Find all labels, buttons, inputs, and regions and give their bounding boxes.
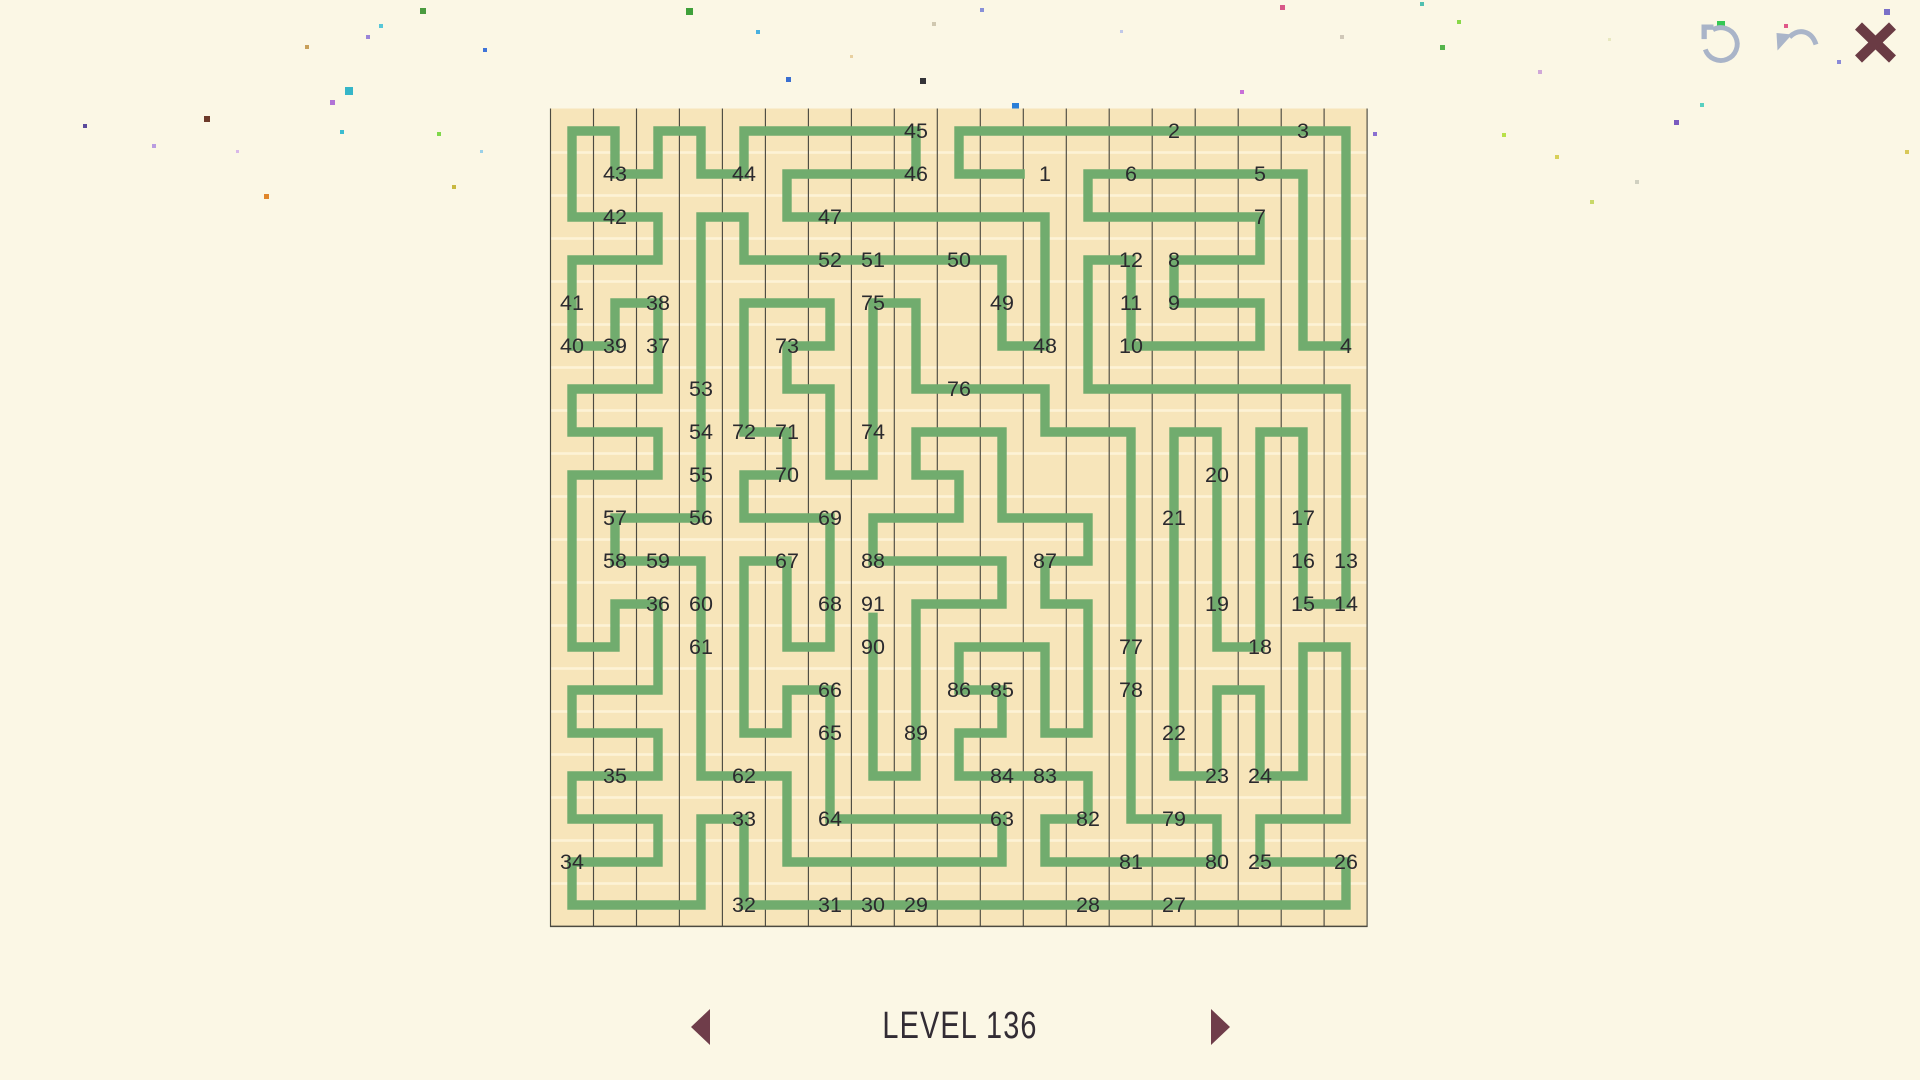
svg-text:38: 38 xyxy=(646,291,670,315)
svg-text:2: 2 xyxy=(1168,119,1180,143)
svg-text:18: 18 xyxy=(1248,635,1272,659)
svg-text:59: 59 xyxy=(646,549,670,573)
svg-text:3: 3 xyxy=(1297,119,1309,143)
svg-text:76: 76 xyxy=(947,377,971,401)
svg-text:28: 28 xyxy=(1076,893,1100,917)
svg-text:79: 79 xyxy=(1162,807,1186,831)
svg-text:39: 39 xyxy=(603,334,627,358)
svg-text:66: 66 xyxy=(818,678,842,702)
svg-text:61: 61 xyxy=(689,635,713,659)
svg-text:89: 89 xyxy=(904,721,928,745)
svg-text:90: 90 xyxy=(861,635,885,659)
svg-text:60: 60 xyxy=(689,592,713,616)
svg-text:22: 22 xyxy=(1162,721,1186,745)
svg-text:78: 78 xyxy=(1119,678,1143,702)
svg-text:34: 34 xyxy=(560,850,584,874)
svg-text:84: 84 xyxy=(990,764,1014,788)
svg-text:11: 11 xyxy=(1120,291,1142,315)
svg-text:19: 19 xyxy=(1205,592,1229,616)
svg-text:86: 86 xyxy=(947,678,971,702)
svg-text:41: 41 xyxy=(560,291,584,315)
svg-text:31: 31 xyxy=(818,893,842,917)
svg-text:55: 55 xyxy=(689,463,713,487)
svg-text:7: 7 xyxy=(1254,205,1266,229)
svg-text:29: 29 xyxy=(904,893,928,917)
svg-text:40: 40 xyxy=(560,334,584,358)
svg-text:4: 4 xyxy=(1340,334,1352,358)
svg-text:32: 32 xyxy=(732,893,756,917)
svg-text:88: 88 xyxy=(861,549,885,573)
svg-text:10: 10 xyxy=(1119,334,1143,358)
svg-text:68: 68 xyxy=(818,592,842,616)
svg-text:5: 5 xyxy=(1254,162,1266,186)
svg-text:24: 24 xyxy=(1248,764,1272,788)
svg-text:21: 21 xyxy=(1162,506,1186,530)
svg-text:47: 47 xyxy=(818,205,842,229)
svg-text:6: 6 xyxy=(1125,162,1137,186)
svg-text:42: 42 xyxy=(603,205,627,229)
svg-text:83: 83 xyxy=(1033,764,1057,788)
svg-text:64: 64 xyxy=(818,807,842,831)
svg-text:51: 51 xyxy=(861,248,885,272)
svg-text:52: 52 xyxy=(818,248,842,272)
svg-text:LEVEL 136: LEVEL 136 xyxy=(882,1004,1037,1047)
svg-text:45: 45 xyxy=(904,119,928,143)
svg-text:20: 20 xyxy=(1205,463,1229,487)
svg-text:71: 71 xyxy=(775,420,799,444)
svg-text:46: 46 xyxy=(904,162,928,186)
svg-text:17: 17 xyxy=(1291,506,1315,530)
svg-text:54: 54 xyxy=(689,420,713,444)
svg-text:57: 57 xyxy=(603,506,627,530)
svg-text:72: 72 xyxy=(732,420,756,444)
svg-text:58: 58 xyxy=(603,549,627,573)
svg-text:53: 53 xyxy=(689,377,713,401)
svg-text:50: 50 xyxy=(947,248,971,272)
svg-text:65: 65 xyxy=(818,721,842,745)
svg-text:82: 82 xyxy=(1076,807,1100,831)
svg-text:23: 23 xyxy=(1205,764,1229,788)
svg-text:12: 12 xyxy=(1119,248,1143,272)
svg-text:67: 67 xyxy=(775,549,799,573)
svg-text:77: 77 xyxy=(1119,635,1143,659)
svg-text:8: 8 xyxy=(1168,248,1180,272)
svg-text:9: 9 xyxy=(1168,291,1180,315)
svg-text:63: 63 xyxy=(990,807,1014,831)
svg-text:30: 30 xyxy=(861,893,885,917)
svg-text:70: 70 xyxy=(775,463,799,487)
svg-text:43: 43 xyxy=(603,162,627,186)
svg-text:37: 37 xyxy=(646,334,670,358)
svg-text:44: 44 xyxy=(732,162,756,186)
svg-text:33: 33 xyxy=(732,807,756,831)
svg-text:75: 75 xyxy=(861,291,885,315)
svg-text:26: 26 xyxy=(1334,850,1358,874)
svg-text:25: 25 xyxy=(1248,850,1272,874)
svg-text:80: 80 xyxy=(1205,850,1229,874)
svg-text:87: 87 xyxy=(1033,549,1057,573)
svg-text:27: 27 xyxy=(1162,893,1186,917)
svg-text:13: 13 xyxy=(1334,549,1358,573)
svg-text:15: 15 xyxy=(1291,592,1315,616)
svg-text:69: 69 xyxy=(818,506,842,530)
svg-text:62: 62 xyxy=(732,764,756,788)
svg-text:1: 1 xyxy=(1039,162,1051,186)
svg-text:91: 91 xyxy=(861,592,885,616)
svg-text:81: 81 xyxy=(1119,850,1143,874)
svg-text:56: 56 xyxy=(689,506,713,530)
svg-text:16: 16 xyxy=(1291,549,1315,573)
svg-text:48: 48 xyxy=(1033,334,1057,358)
svg-text:36: 36 xyxy=(646,592,670,616)
svg-text:85: 85 xyxy=(990,678,1014,702)
svg-text:14: 14 xyxy=(1334,592,1358,616)
svg-text:35: 35 xyxy=(603,764,627,788)
svg-text:49: 49 xyxy=(990,291,1014,315)
svg-text:73: 73 xyxy=(775,334,799,358)
svg-text:74: 74 xyxy=(861,420,885,444)
